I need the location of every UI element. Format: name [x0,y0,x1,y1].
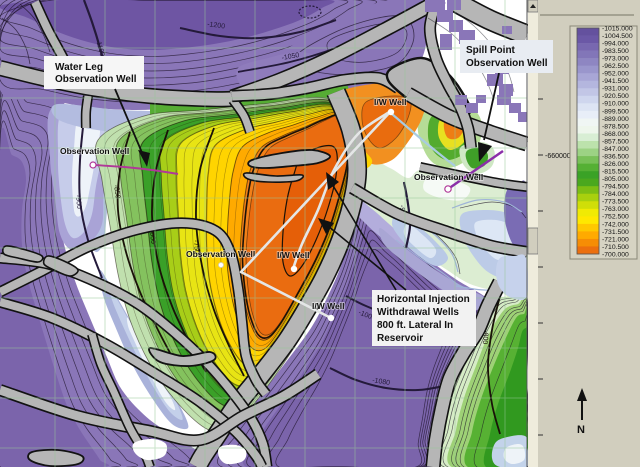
svg-text:-815.500: -815.500 [602,169,629,176]
svg-text:I/W Well: I/W Well [277,250,309,260]
svg-text:-700.000: -700.000 [602,251,629,258]
svg-text:-721.000: -721.000 [602,236,629,243]
svg-text:Observation Well: Observation Well [186,249,255,259]
svg-text:-731.500: -731.500 [602,229,629,236]
svg-text:-773.500: -773.500 [602,199,629,206]
svg-text:-710.500: -710.500 [602,244,629,251]
svg-text:-857.500: -857.500 [602,138,629,145]
svg-text:N: N [577,424,585,436]
svg-text:-836.500: -836.500 [602,154,629,161]
svg-text:-973.000: -973.000 [602,56,629,63]
svg-text:-889.000: -889.000 [602,116,629,123]
svg-text:-900: -900 [74,195,82,210]
svg-text:-784.000: -784.000 [602,191,629,198]
svg-text:-952.000: -952.000 [602,71,629,78]
svg-text:-660000: -660000 [545,153,571,160]
svg-text:-1004.500: -1004.500 [602,33,633,40]
svg-text:-1015.000: -1015.000 [602,25,633,32]
svg-text:-941.500: -941.500 [602,78,629,85]
svg-text:-763.000: -763.000 [602,206,629,213]
svg-text:Observation Well: Observation Well [60,146,129,156]
svg-text:I/W Well: I/W Well [312,301,344,311]
svg-text:-742.000: -742.000 [602,221,629,228]
svg-text:-920.500: -920.500 [602,93,629,100]
svg-text:-962.500: -962.500 [602,63,629,70]
svg-text:-878.500: -878.500 [602,123,629,130]
svg-text:-931.000: -931.000 [602,86,629,93]
svg-text:-826.000: -826.000 [602,161,629,168]
svg-text:-910.000: -910.000 [602,101,629,108]
svg-text:-983.500: -983.500 [602,48,629,55]
svg-text:-805.000: -805.000 [602,176,629,183]
svg-text:Observation Well: Observation Well [414,172,483,182]
svg-text:-847.000: -847.000 [602,146,629,153]
svg-text:-794.500: -794.500 [602,184,629,191]
svg-text:-752.500: -752.500 [602,214,629,221]
svg-text:-994.000: -994.000 [602,41,629,48]
svg-text:I/W Well: I/W Well [374,97,406,107]
svg-text:-899.500: -899.500 [602,108,629,115]
svg-text:-868.000: -868.000 [602,131,629,138]
